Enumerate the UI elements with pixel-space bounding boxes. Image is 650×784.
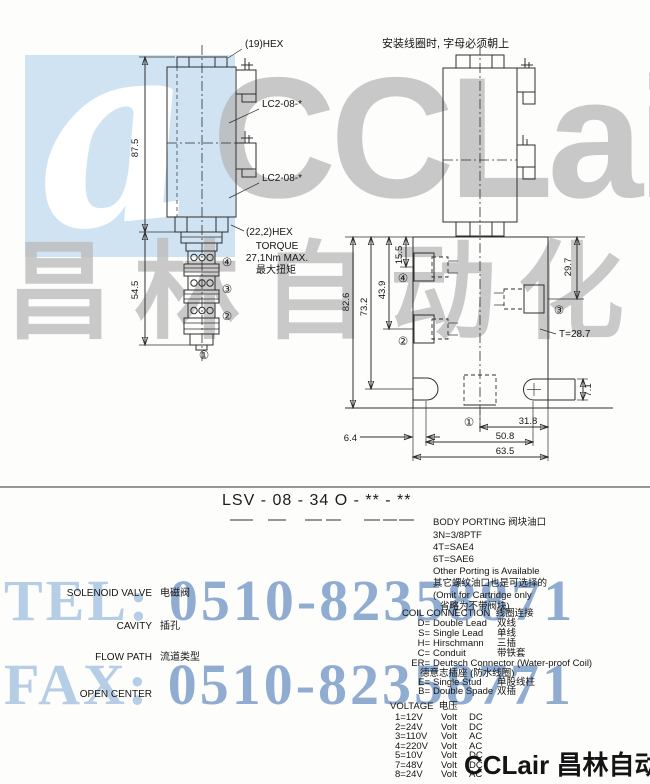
legend-flow-path-cn: 流道类型 — [160, 652, 200, 663]
legend-solenoid-valve-cn: 电磁阀 — [160, 588, 190, 599]
front-port-3-marker: ③ — [222, 284, 232, 296]
side-view-drawing: 安装线圈时, 字母必须朝上 — [341, 36, 613, 461]
legend-cavity-en: CAVITY — [0, 621, 152, 632]
body-porting-line: (Omit for Cartridge only — [433, 591, 532, 601]
dim-63-5: 63.5 — [496, 446, 515, 457]
dim-43-9: 43.9 — [377, 281, 388, 300]
datasheet-page: a CCLair 昌林自动化 TEL: 0510-82358871 FAX: 0… — [0, 0, 650, 784]
body-porting-line: 其它螺纹油口也是可选择的 — [433, 579, 547, 589]
footer-brand: CCLair 昌林自动化 — [464, 745, 650, 782]
body-porting-line: Other Porting is Available — [433, 567, 540, 577]
cavity-label-2: LC2-08-* — [262, 173, 302, 184]
body-porting-title: BODY PORTING 阀块油口 — [433, 518, 546, 528]
coil-option-code: B= — [398, 687, 430, 697]
legend-solenoid-valve-en: SOLENOID VALVE — [0, 588, 152, 599]
front-port-4-marker: ④ — [222, 257, 232, 269]
dim-87-5: 87.5 — [130, 139, 141, 158]
dim-54-5: 54.5 — [130, 281, 141, 300]
torque-cn: 最大扭矩 — [256, 263, 296, 276]
cavity-label-1: LC2-08-* — [262, 99, 302, 110]
dim-15-5: 15.5 — [394, 246, 405, 265]
legend-cavity-cn: 插孔 — [160, 621, 180, 632]
side-port-4-marker: ④ — [398, 273, 408, 285]
dim-73-2: 73.2 — [359, 298, 370, 317]
model-code-leader-lines — [160, 520, 429, 708]
dim-50-8: 50.8 — [496, 431, 515, 442]
dim-31-8: 31.8 — [519, 416, 538, 427]
voltage-row-code: 8=24V — [395, 770, 423, 780]
side-port-1-marker: ① — [464, 417, 474, 429]
legend-flow-path-en: FLOW PATH — [0, 652, 152, 663]
coil-option-cn: 双插 — [497, 687, 516, 697]
thread-size-label: T=28.7 — [559, 329, 591, 340]
dim-82-6: 82.6 — [341, 293, 352, 312]
legend-open-center-en: OPEN CENTER — [0, 689, 152, 700]
torque-title: TORQUE — [256, 241, 299, 252]
hex22-label: (22,2)HEX — [246, 227, 293, 238]
front-port-2-marker: ② — [222, 311, 232, 323]
front-view-drawing: 87.5 54.5 (19)HEX LC2-08-* LC2-08-* (22,… — [130, 39, 308, 362]
body-porting-line: 4T=SAE4 — [433, 543, 474, 553]
front-port-1-marker: ① — [199, 350, 209, 362]
model-code: LSV - 08 - 34 O - ** - ** — [222, 495, 412, 506]
voltage-row-unit: Volt — [441, 770, 457, 780]
torque-value: 27,1Nm MAX. — [246, 253, 308, 264]
body-porting-line: 3N=3/8PTF — [433, 531, 482, 541]
hex19-label: (19)HEX — [245, 39, 284, 50]
coil-option-en: Double Spade — [433, 687, 493, 697]
dim-7-1: 7.1 — [583, 383, 594, 396]
side-port-2-marker: ② — [398, 336, 408, 348]
voltage-title: VOLTAGE 电压 — [390, 702, 458, 712]
side-port-3-marker: ③ — [554, 305, 564, 317]
body-porting-line: 6T=SAE6 — [433, 555, 474, 565]
dim-6-4: 6.4 — [344, 433, 357, 444]
dim-29-7: 29.7 — [563, 258, 574, 277]
coil-install-note: 安装线圈时, 字母必须朝上 — [382, 36, 509, 50]
